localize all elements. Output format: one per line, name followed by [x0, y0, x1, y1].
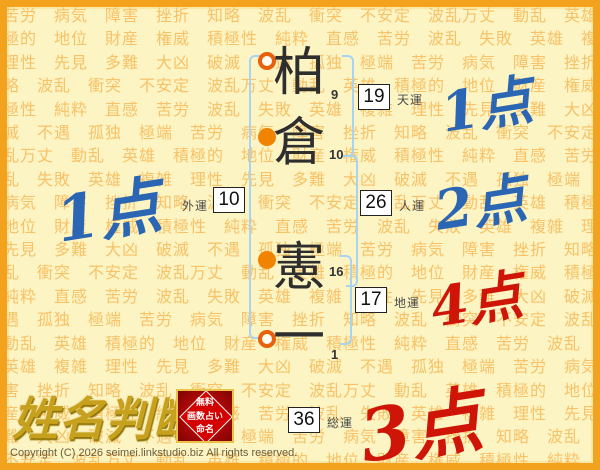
stroke-count: 16 — [329, 264, 343, 279]
stroke-count: 10 — [329, 147, 343, 162]
chiun-label: 地運 — [394, 294, 420, 311]
soun-score: 3点 — [352, 360, 489, 470]
stroke-count: 9 — [331, 87, 338, 102]
name-char: 倉 — [273, 115, 325, 171]
gaiun-bracket — [249, 55, 261, 339]
gaiun-score: 1点 — [49, 154, 167, 259]
jinun-label: 人運 — [399, 197, 425, 214]
name-char: 一 — [273, 310, 325, 366]
jinun-value-box: 26 — [360, 190, 392, 216]
soun-label: 総運 — [327, 414, 353, 431]
gaiun-value-box: 10 — [213, 187, 245, 213]
tenun-bracket — [342, 55, 354, 157]
chiun-value-box: 17 — [355, 287, 387, 313]
tenun-score: 1点 — [434, 55, 537, 147]
name-char: 憲 — [273, 240, 325, 296]
chiun-score: 4点 — [424, 250, 527, 342]
gaiun-label: 外運 — [182, 197, 208, 214]
tenun-value-box: 19 — [358, 84, 390, 110]
stamp-line: 無料 — [196, 397, 214, 407]
stroke-count: 1 — [331, 347, 338, 362]
stamp-line: 命名 — [196, 424, 214, 434]
stamp-line: 画数占い — [187, 411, 223, 421]
jinun-score: 2点 — [428, 153, 531, 245]
site-logo[interactable]: 姓名判断 — [12, 383, 200, 449]
stamp-text: 無料 画数占い 命名 — [178, 396, 232, 437]
tenun-label: 天運 — [397, 91, 423, 108]
soun-value-box: 36 — [288, 407, 320, 433]
name-char: 柏 — [273, 45, 325, 101]
copyright-text: Copyright (C) 2026 seimei.linkstudio.biz… — [10, 447, 297, 459]
seimei-handan-result-page: 苦労 病気 障害 挫折 知略 波乱 衝突 不安定 波乱万丈 動乱 英雄 積極的 … — [0, 0, 600, 470]
free-naming-stamp: 無料 画数占い 命名 — [176, 389, 234, 443]
